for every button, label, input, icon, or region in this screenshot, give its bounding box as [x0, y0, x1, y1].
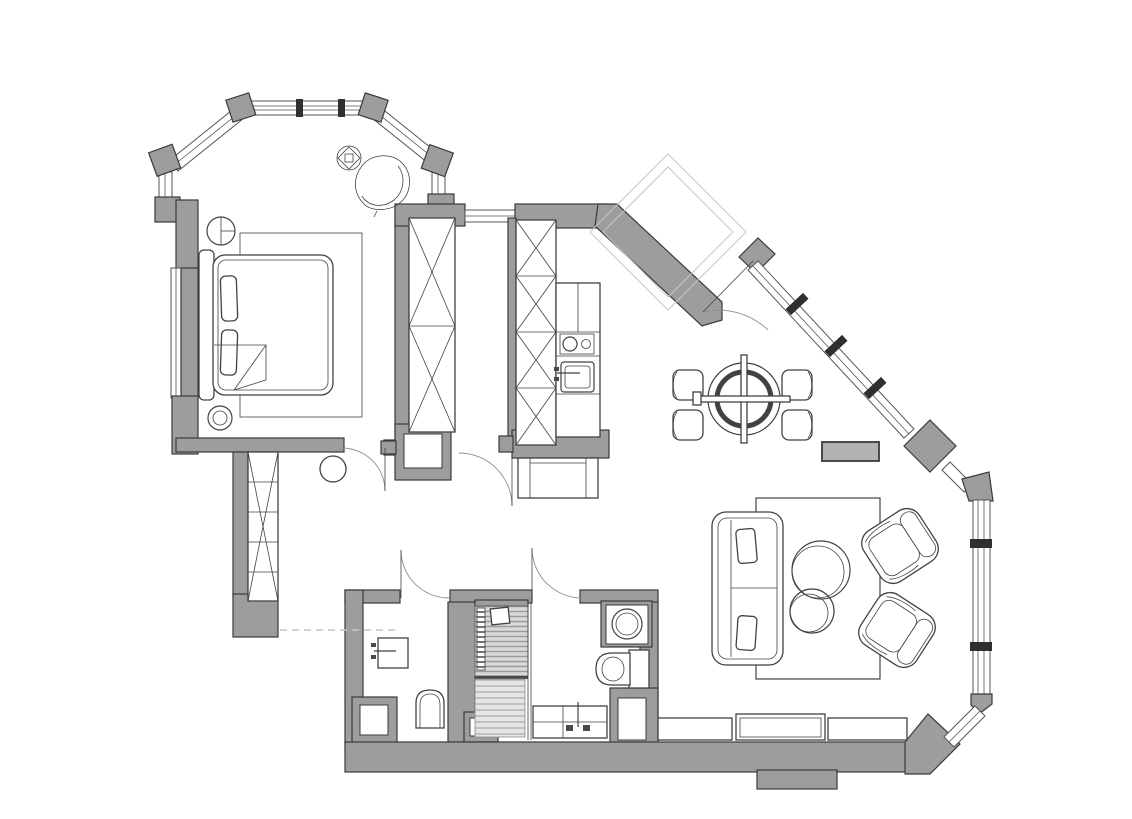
floor-plan-drawing — [0, 0, 1132, 819]
kitchen-tall-cabinets — [516, 220, 556, 445]
bedside-round-table — [207, 217, 235, 245]
faucet-handle — [371, 655, 376, 659]
floor-plan-page — [0, 0, 1132, 819]
armchair — [853, 587, 941, 673]
shower-head-box — [490, 607, 510, 625]
wall-segment — [181, 268, 198, 398]
pillow — [220, 276, 238, 322]
corner-pier — [962, 472, 993, 501]
window-mullion — [970, 539, 992, 548]
dining-chair — [673, 410, 703, 440]
living-area — [658, 498, 944, 740]
pillow — [220, 330, 238, 376]
wall-stub — [499, 436, 513, 452]
window-mullion — [296, 99, 303, 117]
radiator-block — [822, 442, 879, 461]
wall-segment — [508, 218, 516, 446]
cabinet-outline — [516, 220, 556, 445]
faucet-handle — [566, 725, 573, 731]
toilet-with-tank — [596, 650, 649, 688]
low-cabinet — [658, 718, 732, 740]
sofa-pillow — [736, 615, 757, 650]
corridor-wardrobe — [248, 452, 278, 601]
toilet-bowl — [596, 653, 630, 685]
shower-hatched-floor — [475, 679, 525, 737]
round-stool — [208, 406, 232, 430]
faucet-handle — [583, 725, 590, 731]
armchair — [856, 503, 944, 589]
faucet-handle — [371, 643, 376, 647]
wardrobe-outline — [409, 218, 455, 432]
ceiling-light-symbol — [337, 146, 361, 170]
shower-room — [475, 603, 531, 740]
low-cabinet — [828, 718, 907, 740]
bay-corner-pier — [149, 144, 181, 176]
sofa-pillow — [736, 528, 758, 564]
hall-wardrobe — [409, 218, 455, 432]
vanity-counter — [533, 702, 607, 738]
wall-segment — [475, 600, 528, 606]
wall-step — [757, 770, 837, 789]
niche-opening — [404, 434, 442, 468]
coffee-tables — [790, 541, 850, 633]
sofa — [712, 512, 783, 665]
shower-divider — [475, 676, 528, 679]
entry-diagonal-wall — [595, 204, 722, 326]
wc-door-arc — [401, 550, 449, 598]
faucet-handle — [554, 377, 559, 381]
wall-segment — [395, 210, 409, 452]
bedroom-door-arc — [342, 448, 385, 491]
bathroom-door-arc — [532, 548, 582, 598]
dining-chair — [782, 410, 812, 440]
towel-ladder — [477, 608, 485, 670]
wash-basin — [378, 638, 408, 668]
wall-segment — [233, 452, 248, 597]
niche-opening — [360, 705, 388, 735]
console-bench — [518, 458, 598, 498]
toilet-tank — [629, 650, 649, 688]
round-dining-table — [693, 355, 790, 443]
faucet-handle — [554, 367, 559, 371]
wall-segment — [176, 438, 344, 452]
right-vertical-window-band — [973, 500, 990, 696]
bedroom — [199, 146, 410, 430]
headboard — [199, 250, 214, 400]
bottom-exterior-wall — [345, 742, 908, 772]
double-bed — [199, 250, 333, 400]
wall-stub — [381, 441, 396, 454]
bay-top-glazing — [249, 101, 367, 115]
entry-door-leaf — [703, 261, 753, 312]
round-pouf — [320, 456, 346, 482]
kitchen-door-arc — [459, 453, 512, 506]
wall-segment — [176, 200, 198, 270]
niche-opening — [618, 698, 646, 740]
window-mullion — [970, 642, 992, 651]
window-mullion — [338, 99, 345, 117]
right-window-bands — [739, 238, 993, 747]
